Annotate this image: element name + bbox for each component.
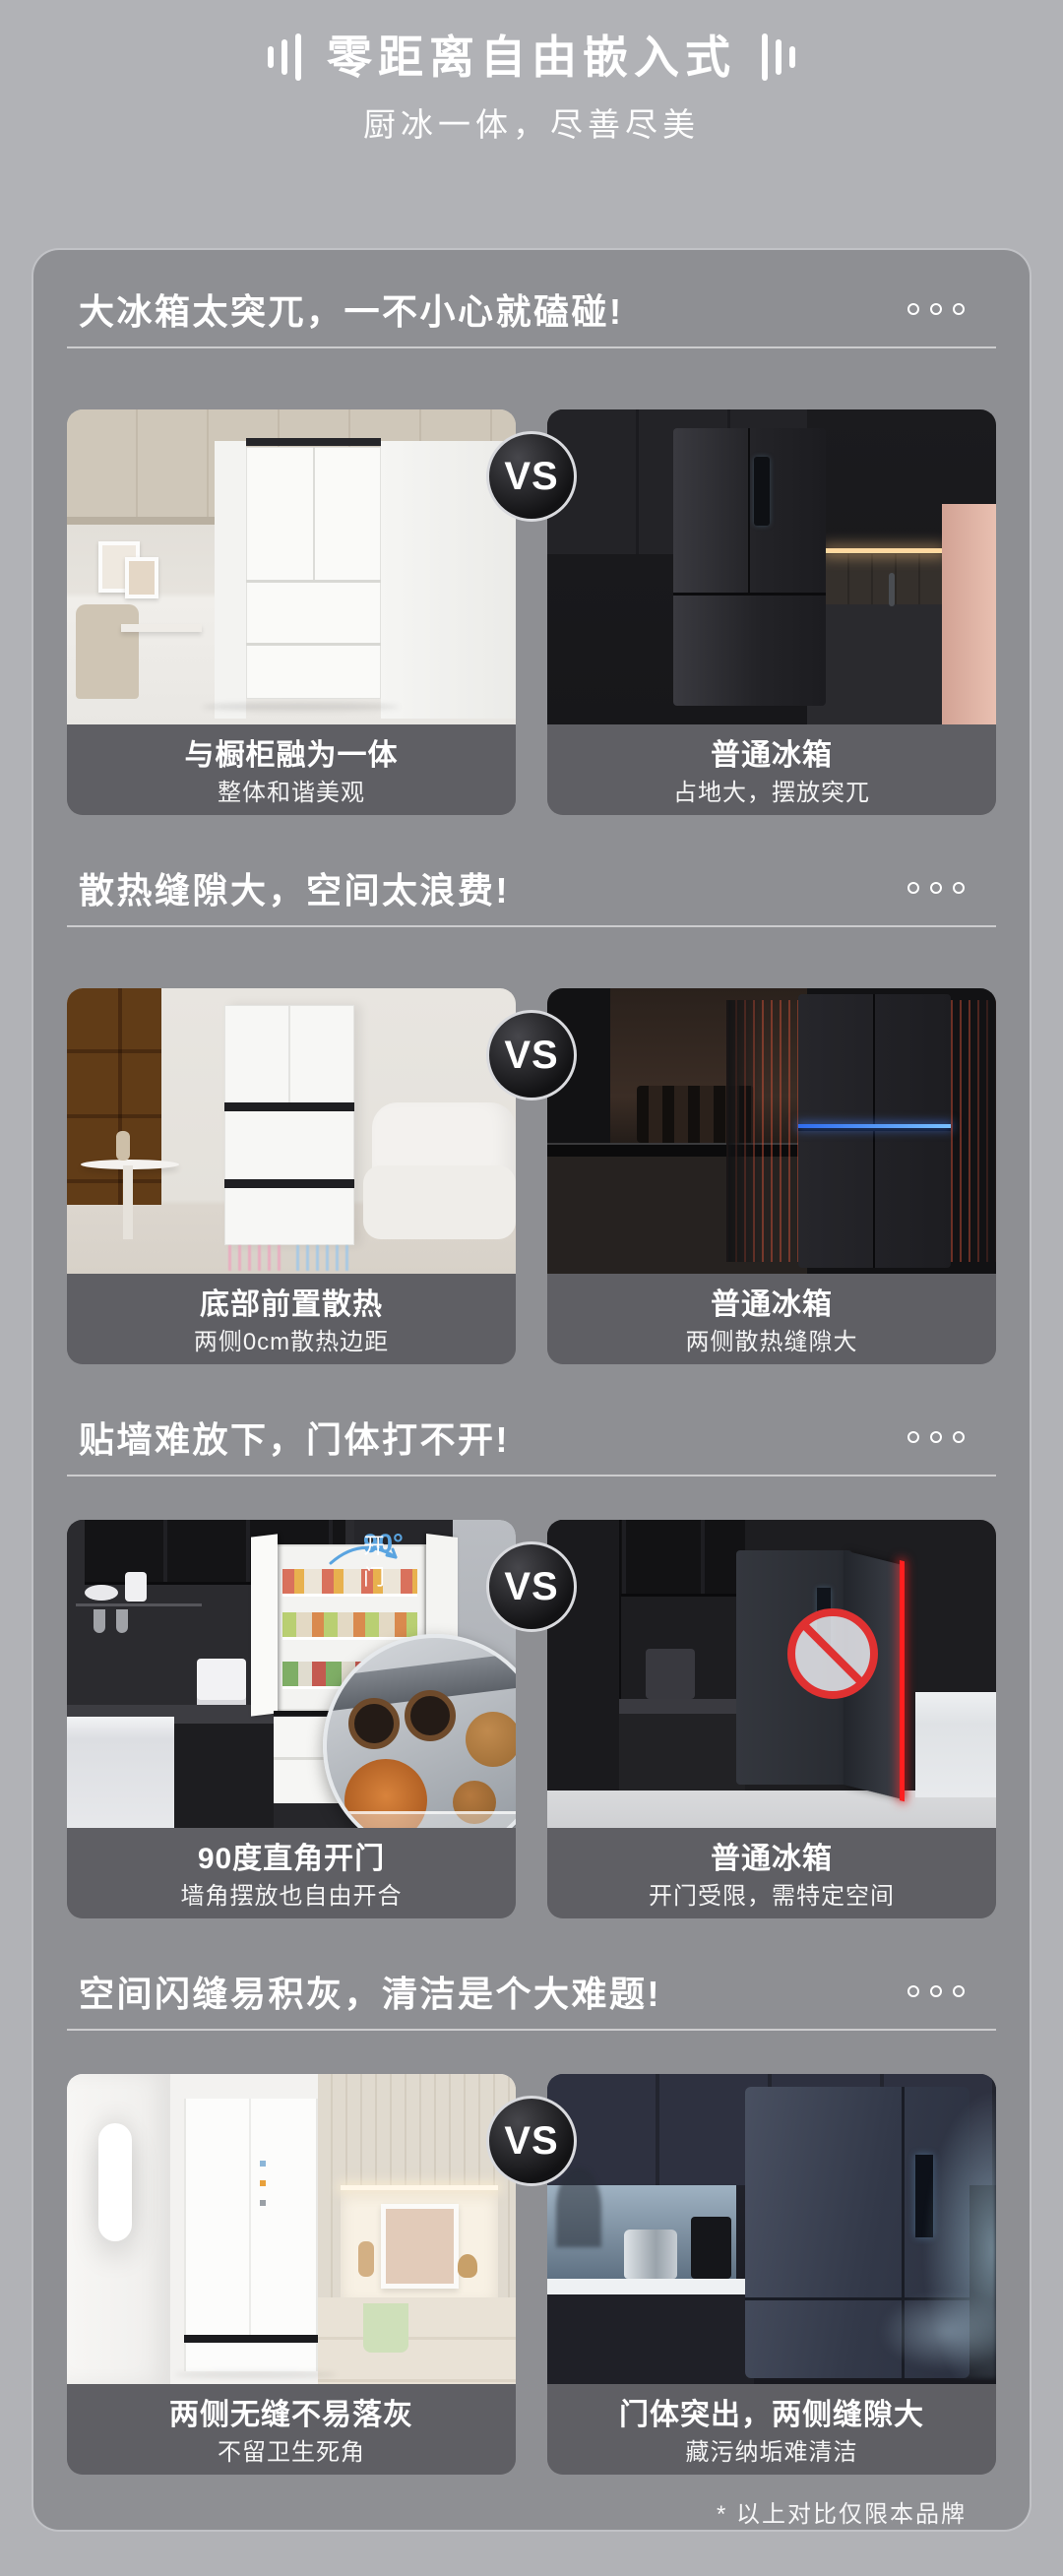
caption-subtitle: 两侧0cm散热边距	[67, 1327, 516, 1358]
page-header: 零距离自由嵌入式 厨冰一体，尽善尽美	[0, 0, 1063, 248]
more-options-icon	[907, 303, 965, 315]
photo-embedded-white-fridge-kitchen	[67, 409, 516, 724]
caption-subtitle: 两侧散热缝隙大	[547, 1327, 996, 1358]
section-divider	[67, 1475, 996, 1476]
comparison-figure-right: 普通冰箱 两侧散热缝隙大	[547, 988, 996, 1364]
section-heading: 空间闪缝易积灰，清洁是个大难题!	[79, 1966, 661, 2017]
caption-bar: 与橱柜融为一体 整体和谐美观	[67, 724, 516, 815]
section-divider	[67, 346, 996, 348]
section-heat-gap: 散热缝隙大，空间太浪费! VS 底部前置散热 两侧0cm散热边距	[67, 864, 996, 1364]
caption-title: 普通冰箱	[547, 1286, 996, 1325]
comparison-figure-left: 与橱柜融为一体 整体和谐美观	[67, 409, 516, 815]
caption-bar: 普通冰箱 两侧散热缝隙大	[547, 1274, 996, 1364]
caption-title: 普通冰箱	[547, 1840, 996, 1879]
caption-bar: 普通冰箱 占地大，摆放突兀	[547, 724, 996, 815]
more-options-icon	[907, 1431, 965, 1443]
caption-subtitle: 整体和谐美观	[67, 778, 516, 809]
caption-bar: 90度直角开门 墙角摆放也自由开合	[67, 1828, 516, 1918]
caption-subtitle: 墙角摆放也自由开合	[67, 1881, 516, 1913]
caption-bar: 门体突出，两侧缝隙大 藏污纳垢难清洁	[547, 2384, 996, 2475]
caption-title: 与橱柜融为一体	[67, 736, 516, 776]
section-divider	[67, 2029, 996, 2031]
caption-bar: 底部前置散热 两侧0cm散热边距	[67, 1274, 516, 1364]
caption-title: 普通冰箱	[547, 736, 996, 776]
comparison-figure-left: 底部前置散热 两侧0cm散热边距	[67, 988, 516, 1364]
section-door-opening: 贴墙难放下，门体打不开! VS 90°	[67, 1414, 996, 1918]
comparison-figure-right: 普通冰箱 开门受限，需特定空间	[547, 1520, 996, 1918]
photo-door-blocked-fridge	[547, 1520, 996, 1828]
photo-black-fridge-dark-kitchen	[547, 409, 996, 724]
caption-title: 90度直角开门	[67, 1840, 516, 1879]
caption-bar: 普通冰箱 开门受限，需特定空间	[547, 1828, 996, 1918]
photo-protruding-fridge-dusty-gap	[547, 2074, 996, 2384]
comparison-figure-left: 90° 开门 90度直角开门 墙角摆放也自由开合	[67, 1520, 516, 1918]
section-heading: 大冰箱太突兀，一不小心就磕碰!	[79, 283, 624, 335]
more-options-icon	[907, 1985, 965, 1997]
vs-badge: VS	[486, 1010, 577, 1100]
photo-front-bottom-venting-fridge	[67, 988, 516, 1274]
caption-subtitle: 占地大，摆放突兀	[547, 778, 996, 809]
badge-degree-label: 开门	[363, 1529, 385, 1592]
section-heading: 散热缝隙大，空间太浪费!	[79, 862, 510, 913]
section-divider	[67, 925, 996, 927]
title-tick-right-icon	[762, 33, 795, 81]
comparison-figure-right: 门体突出，两侧缝隙大 藏污纳垢难清洁	[547, 2074, 996, 2475]
caption-subtitle: 不留卫生死角	[67, 2437, 516, 2469]
section-heading: 贴墙难放下，门体打不开!	[79, 1412, 510, 1463]
caption-title: 两侧无缝不易落灰	[67, 2396, 516, 2435]
section-dust-cleaning: 空间闪缝易积灰，清洁是个大难题! VS 两侧无缝不易落灰 不留卫生死角	[67, 1968, 996, 2475]
caption-bar: 两侧无缝不易落灰 不留卫生死角	[67, 2384, 516, 2475]
disclaimer-note: * 以上对比仅限本品牌	[67, 2494, 996, 2529]
photo-90-degree-open-fridge: 90° 开门	[67, 1520, 516, 1828]
page-title: 零距离自由嵌入式	[327, 30, 736, 85]
vs-badge: VS	[486, 1541, 577, 1632]
photo-seamless-white-fridge	[67, 2074, 516, 2384]
comparison-card: 大冰箱太突兀，一不小心就磕碰! VS 与橱柜融为一体 整体和谐美观	[31, 248, 1032, 2532]
page-subtitle: 厨冰一体，尽善尽美	[0, 98, 1063, 146]
caption-subtitle: 藏污纳垢难清洁	[547, 2437, 996, 2469]
photo-fridge-side-heat-waves	[547, 988, 996, 1274]
comparison-figure-left: 两侧无缝不易落灰 不留卫生死角	[67, 2074, 516, 2475]
section-bump-collision: 大冰箱太突兀，一不小心就磕碰! VS 与橱柜融为一体 整体和谐美观	[67, 285, 996, 815]
more-options-icon	[907, 882, 965, 894]
caption-title: 门体突出，两侧缝隙大	[547, 2396, 996, 2435]
no-entry-icon	[785, 1606, 880, 1701]
caption-title: 底部前置散热	[67, 1286, 516, 1325]
comparison-figure-right: 普通冰箱 占地大，摆放突兀	[547, 409, 996, 815]
vs-badge: VS	[486, 431, 577, 522]
caption-subtitle: 开门受限，需特定空间	[547, 1881, 996, 1913]
title-tick-left-icon	[268, 33, 301, 81]
vs-badge: VS	[486, 2096, 577, 2186]
